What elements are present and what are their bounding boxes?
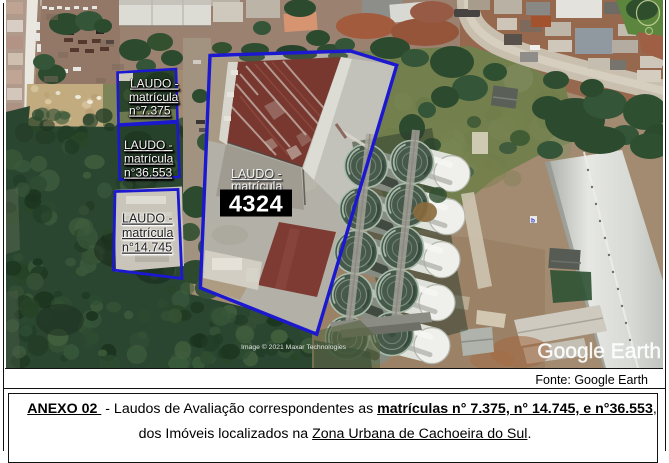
svg-text:n°7.375: n°7.375 xyxy=(129,104,171,118)
svg-text:LAUDO -: LAUDO - xyxy=(130,77,179,91)
svg-text:Google Earth: Google Earth xyxy=(537,340,661,363)
svg-text:matrícula: matrícula xyxy=(124,152,174,166)
svg-text:matrícula: matrícula xyxy=(129,90,179,104)
svg-text:4324: 4324 xyxy=(229,191,283,217)
svg-text:Image © 2021 Maxar Technologie: Image © 2021 Maxar Technologies xyxy=(241,343,347,351)
svg-text:n°14.745: n°14.745 xyxy=(122,241,172,255)
svg-text:LAUDO -: LAUDO - xyxy=(122,212,173,226)
svg-text:n°36.553: n°36.553 xyxy=(124,166,173,180)
svg-text:b: b xyxy=(531,218,535,225)
svg-text:LAUDO -: LAUDO - xyxy=(124,138,173,152)
svg-text:matrícula: matrícula xyxy=(122,226,173,240)
